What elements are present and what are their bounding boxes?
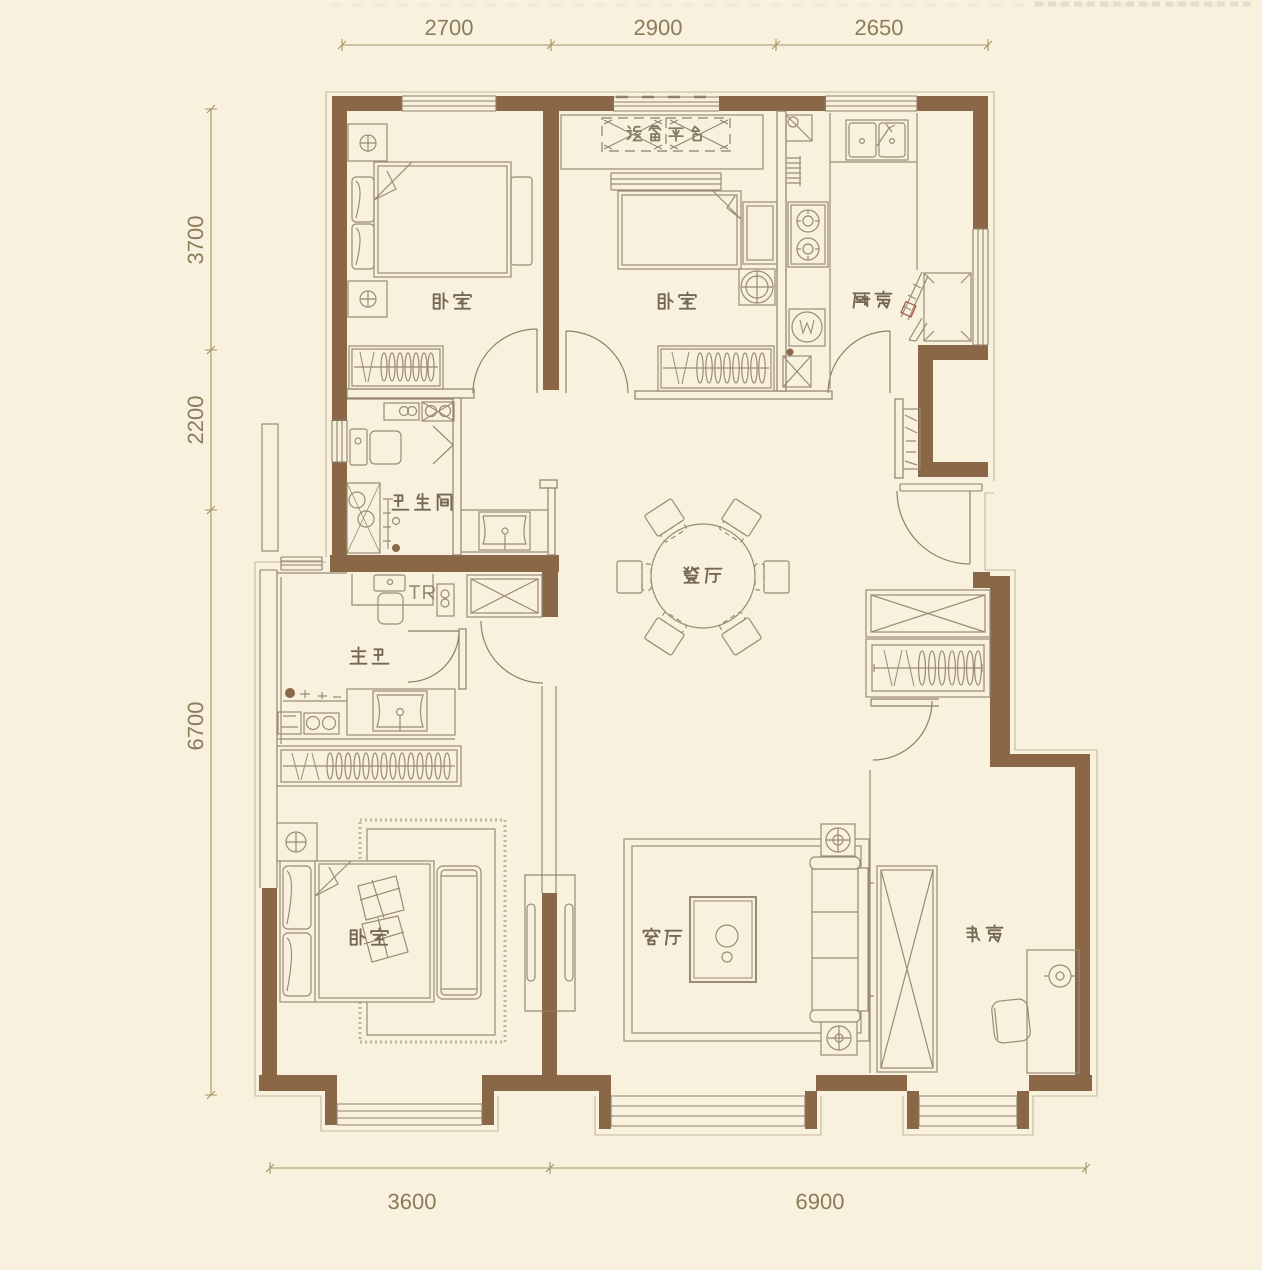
svg-text:3700: 3700: [183, 216, 208, 265]
svg-text:2650: 2650: [855, 15, 904, 40]
svg-text:2700: 2700: [425, 15, 474, 40]
svg-text:6900: 6900: [796, 1189, 845, 1214]
svg-text:6700: 6700: [183, 702, 208, 751]
svg-text:2200: 2200: [183, 396, 208, 445]
svg-text:3600: 3600: [388, 1189, 437, 1214]
svg-text:2900: 2900: [634, 15, 683, 40]
